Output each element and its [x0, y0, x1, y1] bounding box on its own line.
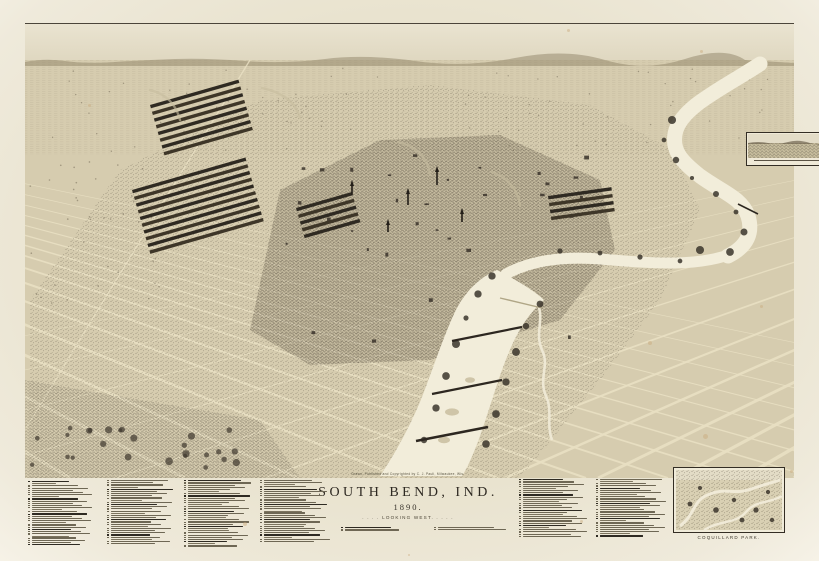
legend-entry	[107, 504, 173, 505]
legend-entry	[107, 497, 173, 498]
legend-entry	[28, 485, 92, 486]
legend-entry	[519, 520, 587, 521]
legend-entry	[260, 530, 330, 531]
legend-entry	[184, 480, 252, 481]
legend-entry	[260, 512, 330, 513]
legend-entry	[107, 493, 173, 494]
legend-entry	[596, 483, 666, 484]
legend-entry	[519, 486, 587, 487]
legend-entry	[28, 488, 92, 489]
legend-entry	[596, 511, 666, 512]
legend-entry	[519, 507, 587, 508]
legend-entry	[596, 503, 666, 504]
legend-entry	[107, 541, 173, 542]
legend-column-5	[519, 479, 587, 538]
legend-entry	[107, 482, 173, 483]
legend-entry	[184, 539, 252, 540]
legend-entry	[28, 520, 92, 521]
legend-column-4	[260, 480, 330, 543]
legend-column-titleref-1	[341, 527, 399, 532]
legend-entry	[596, 535, 666, 536]
legend-entry	[260, 486, 330, 487]
legend-entry	[341, 527, 399, 528]
legend-entry	[260, 506, 330, 507]
legend-entry	[184, 495, 252, 496]
legend-entry	[519, 536, 587, 537]
legend-entry	[184, 537, 252, 538]
legend-entry	[596, 518, 666, 519]
legend-entry	[596, 516, 666, 517]
legend-entry	[184, 498, 252, 499]
legend-column-3	[184, 480, 252, 548]
legend-column-titleref-2	[434, 527, 514, 531]
legend-entry	[107, 495, 173, 496]
legend-entry	[519, 516, 587, 517]
legend-entry	[260, 541, 330, 542]
legend-entry	[519, 518, 587, 519]
legend-entry	[107, 480, 173, 481]
legend-entry	[434, 529, 514, 530]
legend-entry	[260, 489, 330, 490]
legend-entry	[184, 508, 252, 509]
legend-entry	[184, 500, 252, 501]
legend-entry	[596, 522, 666, 523]
legend-entry	[519, 531, 587, 532]
legend-entry	[28, 527, 92, 528]
legend-entry	[28, 537, 92, 538]
inset-top-right	[746, 132, 819, 166]
legend-entry	[434, 527, 514, 528]
legend-entry	[260, 480, 330, 481]
legend-entry	[28, 518, 92, 519]
legend-entry	[260, 499, 330, 500]
legend-entry	[341, 529, 399, 530]
legend-entry	[519, 484, 587, 485]
legend-entry	[107, 511, 173, 512]
legend-entry	[184, 519, 252, 520]
legend-entry	[260, 526, 330, 527]
legend-column-2	[107, 480, 173, 545]
legend-entry	[519, 490, 587, 491]
legend-entry	[596, 498, 666, 499]
legend-entry	[28, 516, 92, 517]
legend-entry	[107, 491, 173, 492]
legend-entry	[107, 521, 173, 522]
legend-entry	[519, 492, 587, 493]
legend-entry	[596, 496, 666, 497]
legend-column-1	[28, 481, 92, 546]
legend-entry	[28, 529, 92, 530]
legend-entry	[28, 492, 92, 493]
legend-entry	[519, 534, 587, 535]
legend-entry	[519, 479, 587, 480]
inset-bottom-right	[673, 467, 785, 533]
legend-entry	[596, 531, 666, 532]
legend-entry	[519, 525, 587, 526]
legend-entry	[519, 529, 587, 530]
legend-entry	[260, 528, 330, 529]
legend-entry	[184, 545, 252, 546]
legend-entry	[184, 493, 252, 494]
legend-entry	[519, 499, 587, 500]
legend-entry	[260, 532, 330, 533]
legend-entry	[28, 531, 92, 532]
legend-entry	[107, 502, 173, 503]
legend-entry	[519, 503, 587, 504]
legend-entry	[260, 508, 330, 509]
legend-entry	[184, 526, 252, 527]
legend-entry	[260, 482, 330, 483]
legend-entry	[596, 490, 666, 491]
legend-entry	[184, 524, 252, 525]
legend-entry	[519, 510, 587, 511]
legend-entry	[596, 492, 666, 493]
legend-entry	[519, 512, 587, 513]
legend-entry	[28, 501, 92, 502]
legend-entry	[107, 506, 173, 507]
legend-entry	[260, 491, 330, 492]
inset-bottom-right-caption: COQUILLARD PARK.	[673, 535, 785, 540]
legend-entry	[260, 539, 330, 540]
legend-entry	[107, 530, 173, 531]
legend-entry	[260, 493, 330, 494]
legend-entry	[28, 511, 92, 512]
legend-entry	[107, 534, 173, 535]
legend-entry	[184, 541, 252, 542]
legend-entry	[28, 498, 92, 499]
legend-entry	[28, 540, 92, 541]
legend-entry	[184, 506, 252, 507]
legend-entry	[596, 529, 666, 530]
legend-entry	[107, 508, 173, 509]
legend-entry	[28, 494, 92, 495]
legend-entry	[28, 513, 92, 514]
legend-entry	[107, 489, 173, 490]
legend-entry	[184, 521, 252, 522]
legend-entry	[107, 524, 173, 525]
legend-entry	[260, 534, 330, 535]
inset-top-right-image	[748, 134, 819, 158]
legend-entry	[107, 515, 173, 516]
legend-entry	[28, 481, 92, 482]
legend-entry	[107, 517, 173, 518]
legend-entry	[596, 527, 666, 528]
legend-entry	[107, 519, 173, 520]
imprint-line: Drawn, Published and Copyrighted by C. J…	[300, 472, 516, 476]
legend-entry	[28, 507, 92, 508]
legend-entry	[28, 544, 92, 545]
legend-entry	[596, 488, 666, 489]
legend-entry	[184, 511, 252, 512]
legend-entry	[107, 537, 173, 538]
legend-entry	[596, 525, 666, 526]
legend-entry	[28, 505, 92, 506]
legend-entry	[596, 505, 666, 506]
legend-entry	[184, 502, 252, 503]
legend-entry	[519, 505, 587, 506]
legend-entry	[184, 487, 252, 488]
scanned-map-paper: Drawn, Published and Copyrighted by C. J…	[0, 0, 819, 561]
legend-entry	[28, 524, 92, 525]
legend-entry	[107, 484, 173, 485]
legend-entry	[184, 535, 252, 536]
legend-entry	[596, 485, 666, 486]
legend-entry	[519, 523, 587, 524]
legend-entry	[184, 489, 252, 490]
legend-entry	[28, 503, 92, 504]
legend-entry	[519, 481, 587, 482]
legend-entry	[596, 501, 666, 502]
legend-entry	[184, 528, 252, 529]
legend-entry	[260, 502, 330, 503]
legend-entry	[184, 482, 252, 483]
legend-entry	[519, 494, 587, 495]
legend-entry	[107, 528, 173, 529]
legend-entry	[596, 479, 666, 480]
legend-entry	[260, 504, 330, 505]
legend-entry	[28, 490, 92, 491]
legend-entry	[260, 519, 330, 520]
legend-entry	[184, 515, 252, 516]
legend-entry	[596, 514, 666, 515]
legend-entry	[107, 543, 173, 544]
legend-entry	[260, 495, 330, 496]
legend-entry	[260, 521, 330, 522]
legend-entry	[28, 533, 92, 534]
legend-entry	[260, 515, 330, 516]
inset-bottom-right-image	[676, 470, 782, 530]
legend-entry	[184, 513, 252, 514]
legend-entry	[28, 542, 92, 543]
inset-top-right-caption-micro	[754, 160, 819, 161]
legend-entry	[596, 509, 666, 510]
legend-entry	[184, 532, 252, 533]
legend-entry	[184, 485, 252, 486]
legend-entry	[260, 517, 330, 518]
legend-entry	[519, 497, 587, 498]
legend-entry	[107, 532, 173, 533]
legend-column-6	[596, 479, 666, 538]
